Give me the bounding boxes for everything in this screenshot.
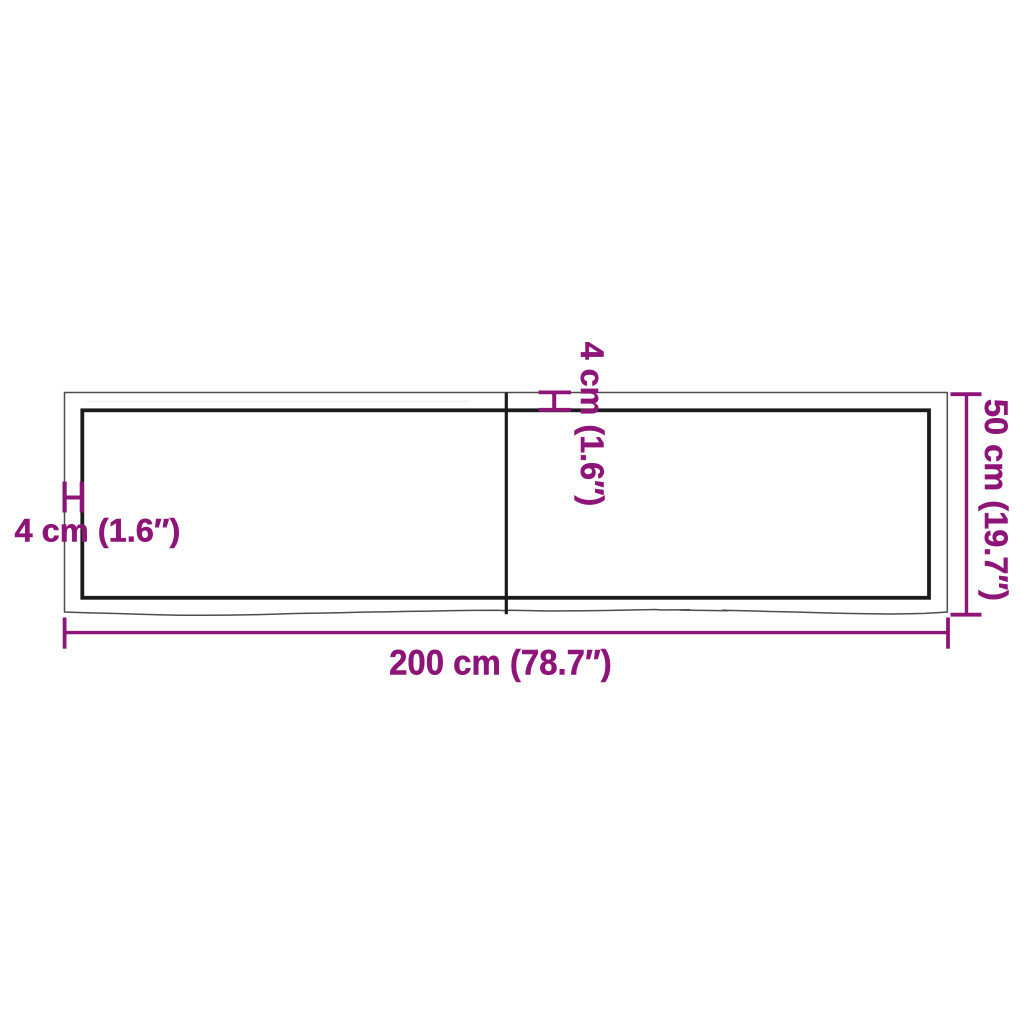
svg-text:4 cm (1.6″): 4 cm (1.6″) bbox=[574, 342, 610, 507]
svg-text:4 cm (1.6″): 4 cm (1.6″) bbox=[15, 513, 181, 549]
svg-text:200 cm (78.7″): 200 cm (78.7″) bbox=[389, 643, 612, 682]
svg-text:50 cm (19.7″): 50 cm (19.7″) bbox=[978, 399, 1014, 601]
